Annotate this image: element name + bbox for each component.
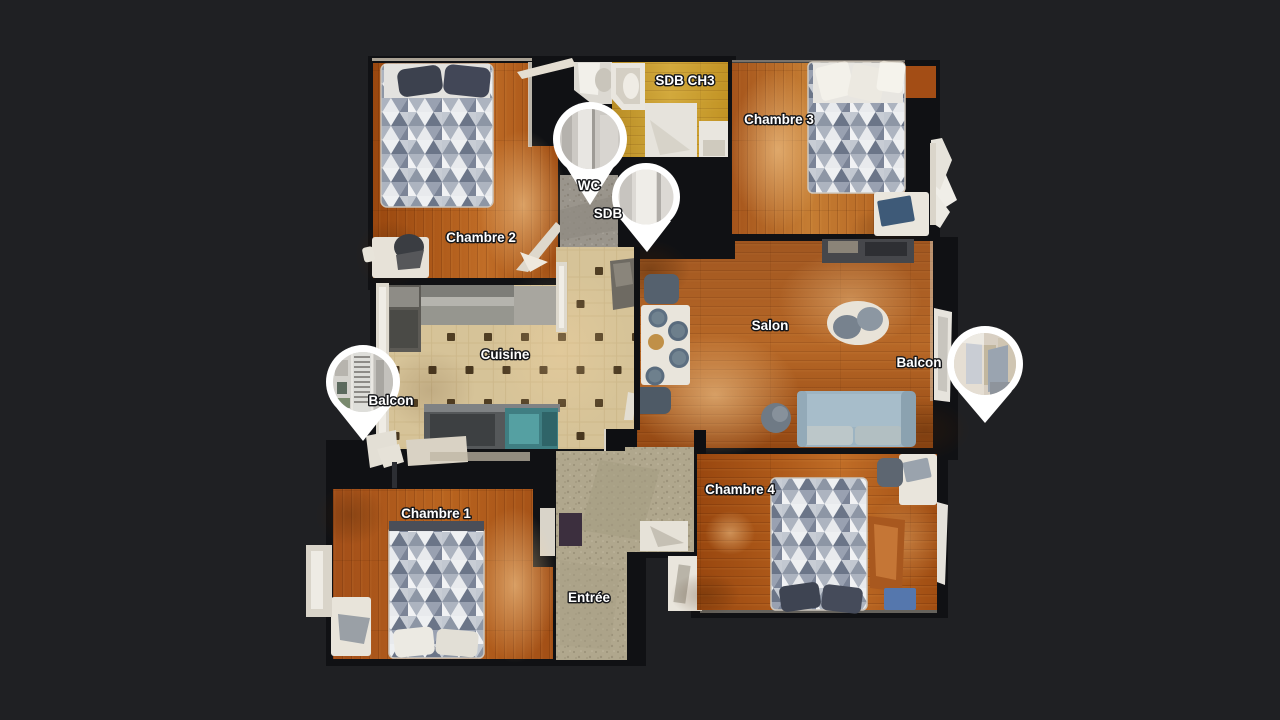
svg-text:SDB CH3: SDB CH3 (655, 73, 715, 88)
svg-text:WC: WC (578, 178, 601, 193)
svg-text:Cuisine: Cuisine (481, 347, 530, 362)
svg-text:Chambre 1: Chambre 1 (401, 506, 471, 521)
svg-text:Chambre 2: Chambre 2 (446, 230, 516, 245)
svg-text:SDB: SDB (594, 206, 623, 221)
svg-text:Salon: Salon (752, 318, 789, 333)
svg-text:Chambre 4: Chambre 4 (705, 482, 775, 497)
svg-text:Chambre 3: Chambre 3 (744, 112, 814, 127)
svg-text:Entrée: Entrée (568, 590, 611, 605)
svg-text:Balcon: Balcon (896, 355, 941, 370)
svg-text:Balcon: Balcon (368, 393, 413, 408)
